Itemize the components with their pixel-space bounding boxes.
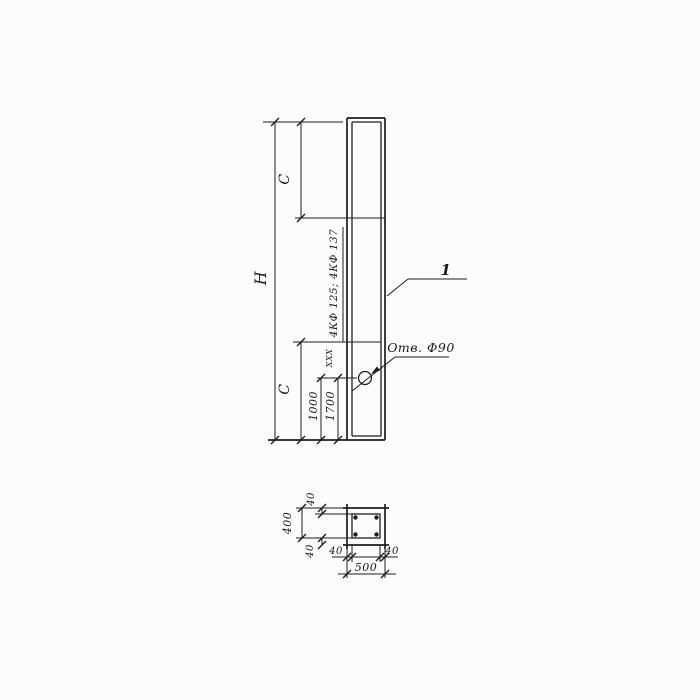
dim-label-40-left: 40: [328, 546, 343, 557]
rebar-dot-icon: [374, 515, 378, 519]
dim-label-40-right: 40: [384, 546, 399, 557]
dim-label-c-top: С: [277, 173, 293, 184]
section-dimension-lines: [302, 508, 398, 574]
section-dim-labels: 400 40 40 40 40 500: [281, 492, 399, 574]
rebar-dot-icon: [353, 515, 357, 519]
rebar-dot-icon: [353, 532, 357, 536]
dim-label-1000: 1000: [307, 391, 320, 421]
drawing-sheet: Отв. Ф90 1 Н С С 1000 1700 XXX 4КФ 125; …: [0, 0, 700, 700]
column-marks-note: 4КФ 125; 4КФ 137: [328, 229, 340, 339]
dim-label-c-bottom: С: [277, 383, 293, 394]
position-callout-label: 1: [441, 261, 452, 279]
hole-leader-line: [352, 357, 395, 391]
section-outline: [343, 504, 389, 549]
section-rebar-cage: [352, 514, 380, 538]
elevation-dim-labels: Н С С 1000 1700 XXX 4КФ 125; 4КФ 137: [251, 173, 340, 421]
dim-label-500: 500: [355, 561, 378, 574]
callout-leader-line: [387, 279, 408, 296]
dim-label-40-bottom: 40: [305, 544, 316, 559]
elevation-view: Отв. Ф90 1 Н С С 1000 1700 XXX 4КФ 125; …: [251, 118, 467, 444]
hole-circle: [359, 372, 372, 385]
dim-label-1700: 1700: [324, 391, 337, 421]
section-view: 400 40 40 40 40 500: [281, 492, 399, 578]
dim-label-400: 400: [281, 512, 294, 536]
dim-label-H: Н: [251, 270, 270, 286]
elevation-extension-lines: [263, 122, 385, 378]
hole-group: Отв. Ф90: [352, 340, 455, 391]
dim-label-40-top: 40: [306, 492, 317, 507]
drawing-canvas: Отв. Ф90 1 Н С С 1000 1700 XXX 4КФ 125; …: [0, 0, 700, 700]
rebar-dot-icon: [374, 532, 378, 536]
dim-label-small: XXX: [325, 349, 334, 369]
position-callout-group: 1: [387, 261, 467, 296]
hole-label: Отв. Ф90: [387, 340, 455, 355]
